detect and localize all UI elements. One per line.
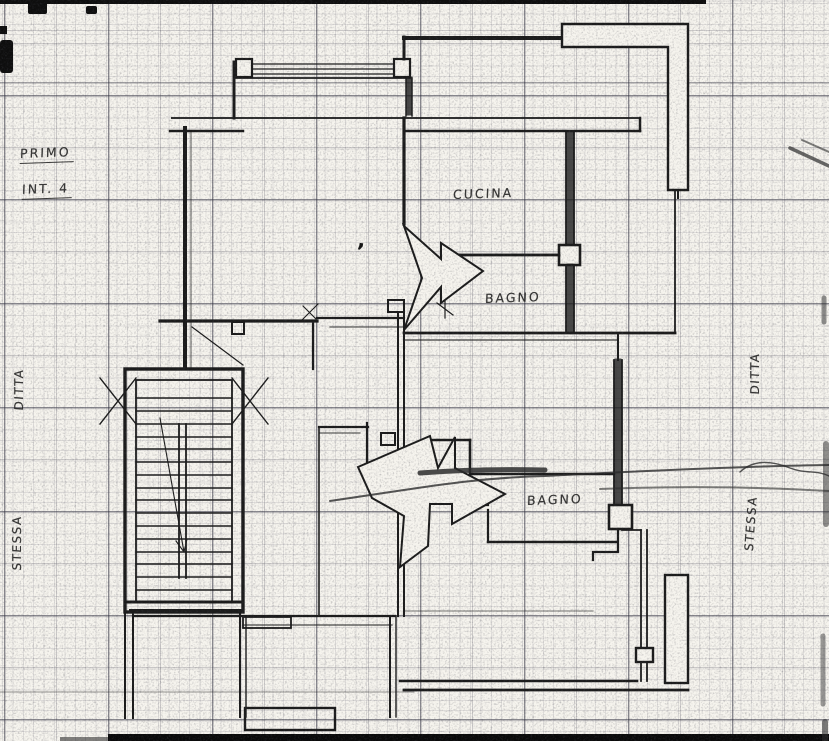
- margin-label-stessa-left: STESSA: [10, 515, 24, 571]
- floorplan-drawing: [0, 0, 829, 741]
- scan-noise: [0, 0, 829, 741]
- scanned-floorplan-page: PRIMO INT. 4 CUCINA BAGNO BAGNO DITTA ST…: [0, 0, 829, 741]
- floor-label: PRIMO: [20, 144, 74, 164]
- unit-label: INT. 4: [22, 180, 73, 200]
- scan-artifacts: [0, 0, 829, 741]
- room-label-cucina: CUCINA: [453, 185, 514, 202]
- room-label-bagno-2: BAGNO: [527, 491, 583, 508]
- margin-label-ditta-left: DITTA: [12, 368, 26, 411]
- room-label-bagno-1: BAGNO: [485, 289, 541, 306]
- margin-label-ditta-right: DITTA: [748, 352, 762, 395]
